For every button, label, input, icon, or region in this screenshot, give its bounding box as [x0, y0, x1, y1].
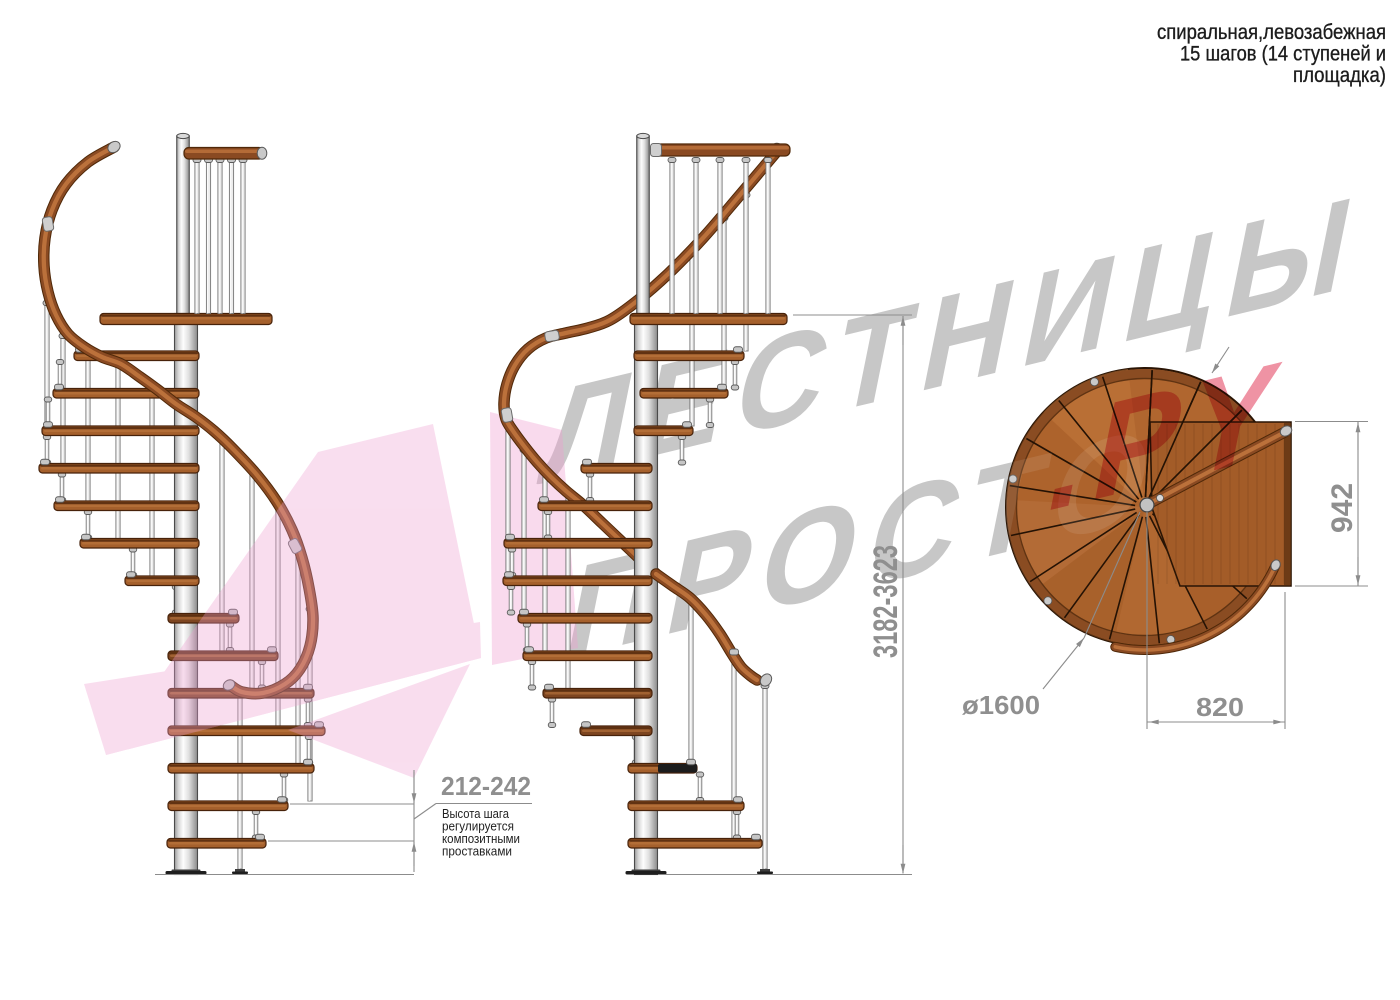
svg-text:3182-3623: 3182-3623: [867, 545, 905, 658]
svg-text:15 шагов (14 ступеней и: 15 шагов (14 ступеней и: [1180, 43, 1386, 66]
svg-text:площадка): площадка): [1293, 64, 1386, 87]
svg-text:спиральная,левозабежная: спиральная,левозабежная: [1157, 21, 1386, 44]
svg-text:212-242: 212-242: [441, 771, 531, 801]
svg-text:942: 942: [1326, 483, 1359, 533]
svg-text:820: 820: [1196, 692, 1244, 722]
svg-text:ø1600: ø1600: [962, 690, 1040, 720]
svg-text:проставками: проставками: [442, 844, 512, 859]
